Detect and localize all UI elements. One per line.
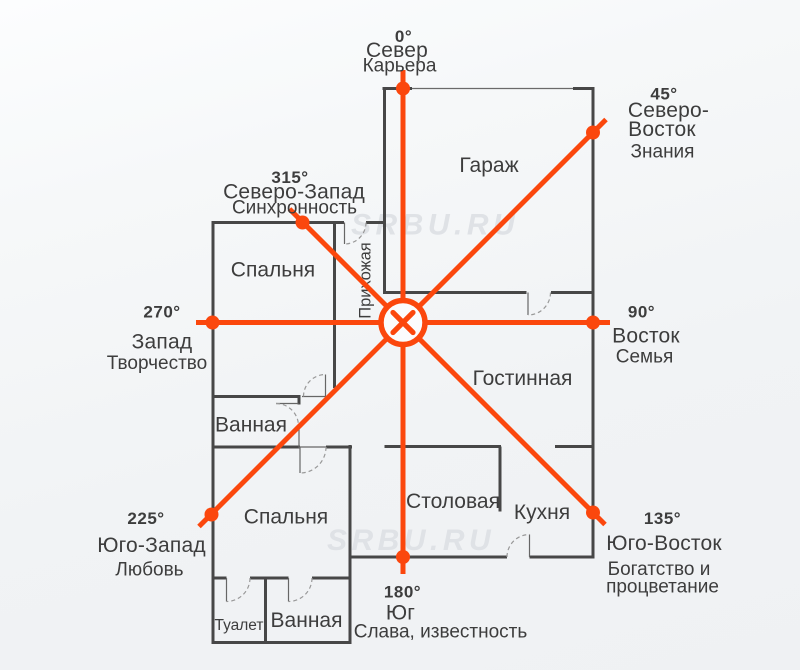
svg-text:Знания: Знания (631, 142, 695, 163)
svg-text:180°: 180° (384, 583, 421, 602)
svg-text:135°: 135° (644, 509, 681, 528)
svg-text:90°: 90° (628, 303, 655, 322)
svg-text:225°: 225° (127, 509, 164, 528)
svg-text:Кухня: Кухня (514, 501, 570, 524)
svg-text:Творчество: Творчество (107, 353, 207, 374)
svg-text:Спальня: Спальня (231, 259, 315, 282)
svg-text:Туалет: Туалет (214, 617, 263, 634)
svg-text:SRBU.RU: SRBU.RU (327, 524, 495, 557)
svg-text:Гараж: Гараж (459, 154, 518, 177)
svg-text:Любовь: Любовь (115, 560, 183, 581)
svg-text:270°: 270° (143, 303, 180, 322)
svg-text:процветание: процветание (606, 577, 719, 598)
svg-text:Восток: Восток (612, 325, 680, 348)
svg-text:Слава, известность: Слава, известность (354, 622, 528, 643)
svg-text:Юго-Восток: Юго-Восток (606, 532, 722, 555)
svg-text:Спальня: Спальня (244, 506, 328, 529)
svg-text:Запад: Запад (132, 331, 193, 354)
svg-text:Ванная: Ванная (271, 609, 343, 632)
svg-text:Восток: Восток (628, 118, 696, 141)
svg-text:Карьера: Карьера (363, 56, 437, 77)
svg-text:SRBU.RU: SRBU.RU (351, 209, 519, 242)
svg-text:Столовая: Столовая (406, 490, 500, 513)
svg-text:Синхронность: Синхронность (232, 198, 357, 219)
svg-text:Юго-Запад: Юго-Запад (97, 534, 206, 557)
svg-text:Ванная: Ванная (215, 414, 287, 437)
svg-text:Семья: Семья (616, 347, 674, 368)
svg-text:Гостинная: Гостинная (473, 367, 573, 390)
